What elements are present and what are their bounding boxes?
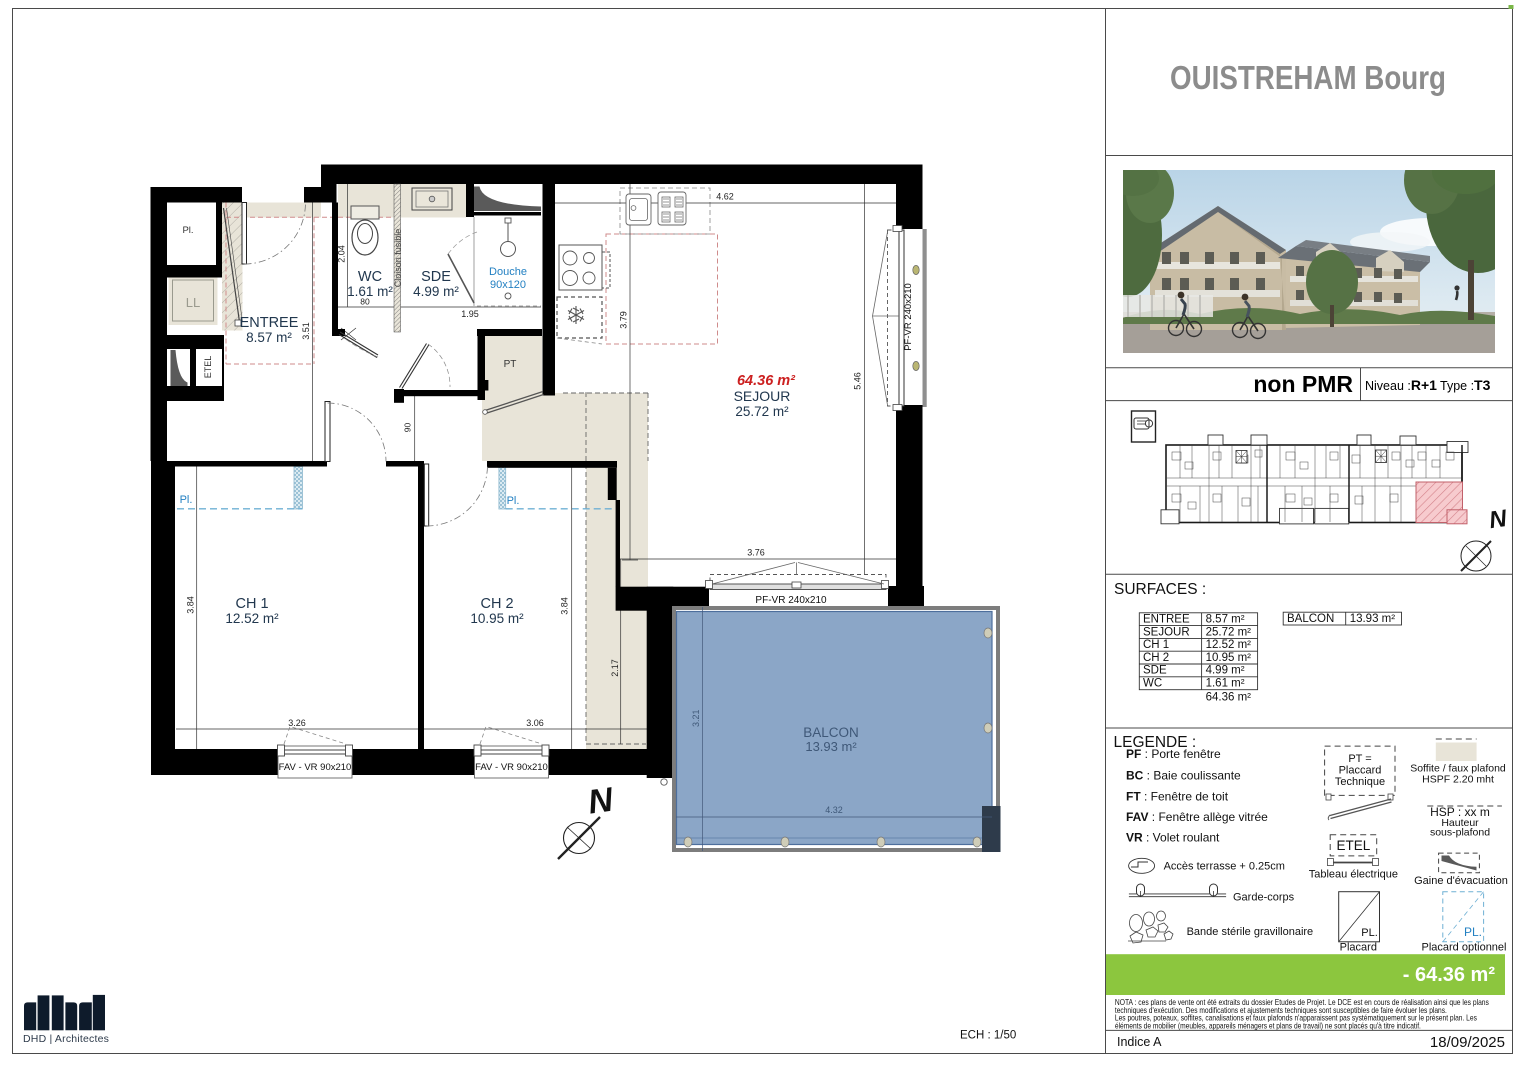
svg-text:CH 1: CH 1 [1143,639,1169,651]
svg-text:Type :T3: Type :T3 [1440,377,1491,393]
svg-text:éléments de mobilier (meubles,: éléments de mobilier (meubles, appareils… [1115,1020,1421,1030]
svg-text:SDE: SDE [1143,665,1167,677]
svg-text:8.57 m²: 8.57 m² [1206,614,1245,626]
svg-text:3.26: 3.26 [288,718,306,728]
svg-text:- 64.36 m²: - 64.36 m² [1403,964,1496,986]
svg-text:BALCON: BALCON [803,725,859,740]
svg-text:4.99 m²: 4.99 m² [413,284,459,299]
svg-text:90: 90 [403,423,413,433]
svg-text:Placard optionnel: Placard optionnel [1421,942,1506,954]
svg-text:Tableau électrique: Tableau électrique [1309,869,1398,881]
svg-text:FAV - VR 90x210: FAV - VR 90x210 [475,762,548,773]
svg-text:3.06: 3.06 [526,718,544,728]
svg-text:Placard: Placard [1340,942,1377,954]
svg-text:13.93 m²: 13.93 m² [1350,613,1396,625]
svg-text:PF-VR 240x210: PF-VR 240x210 [755,595,827,606]
svg-text:25.72 m²: 25.72 m² [735,404,789,419]
svg-text:PL.: PL. [1464,925,1482,939]
svg-text:LL: LL [186,295,200,310]
svg-text:Indice A: Indice A [1117,1035,1162,1049]
svg-text:4.99 m²: 4.99 m² [1206,665,1245,677]
svg-text:3.79: 3.79 [619,311,629,329]
svg-text:non PMR: non PMR [1253,371,1353,397]
svg-text:ENTREE: ENTREE [1143,614,1190,626]
svg-text:PF-VR 240x210: PF-VR 240x210 [903,283,914,351]
svg-text:Douche: Douche [489,266,527,278]
svg-text:5.46: 5.46 [853,372,863,390]
svg-text:FAV - VR 90x210: FAV - VR 90x210 [279,762,352,773]
svg-text:Pl.: Pl. [182,225,193,236]
svg-text:Garde-corps: Garde-corps [1233,892,1295,904]
svg-text:3.51: 3.51 [301,322,311,340]
svg-text:Accès terrasse + 0.25cm: Accès terrasse + 0.25cm [1164,861,1285,873]
svg-text:3.76: 3.76 [747,548,765,558]
svg-text:FAV : Fenêtre allège vitrée: FAV : Fenêtre allège vitrée [1126,810,1268,824]
svg-text:SURFACES :: SURFACES : [1114,581,1206,598]
svg-text:sous-plafond: sous-plafond [1430,827,1490,839]
svg-text:VR : Volet roulant: VR : Volet roulant [1126,831,1220,845]
svg-text:10.95 m²: 10.95 m² [1206,652,1252,664]
svg-text:OUISTREHAM Bourg: OUISTREHAM Bourg [1170,59,1446,96]
svg-text:64.36 m²: 64.36 m² [737,373,796,389]
svg-text:CH 1: CH 1 [235,596,268,612]
svg-text:WC: WC [1143,678,1162,690]
svg-text:4.32: 4.32 [825,805,843,815]
svg-text:BALCON: BALCON [1287,613,1334,625]
svg-text:CH 2: CH 2 [480,596,513,612]
svg-text:1.95: 1.95 [461,309,479,319]
svg-text:Cloison fusible: Cloison fusible [393,229,403,288]
svg-text:8.57 m²: 8.57 m² [246,330,292,345]
svg-text:Gaine d'évacuation: Gaine d'évacuation [1414,875,1508,887]
svg-text:25.72 m²: 25.72 m² [1206,626,1252,638]
svg-text:64.36 m²: 64.36 m² [1206,692,1252,704]
svg-text:Niveau :R+1: Niveau :R+1 [1365,377,1437,393]
svg-text:PF : Porte fenêtre: PF : Porte fenêtre [1126,747,1221,761]
svg-text:3.84: 3.84 [186,596,196,614]
svg-text:12.52 m²: 12.52 m² [1206,639,1252,651]
svg-text:BC : Baie coulissante: BC : Baie coulissante [1126,769,1241,783]
svg-text:ECH : 1/50: ECH : 1/50 [960,1030,1016,1042]
svg-text:3.21: 3.21 [691,709,701,727]
svg-text:FT : Fenêtre de toit: FT : Fenêtre de toit [1126,790,1229,804]
svg-text:HSPF 2.20 mht: HSPF 2.20 mht [1422,774,1494,786]
svg-text:18/09/2025: 18/09/2025 [1430,1034,1505,1051]
svg-text:80: 80 [360,297,370,307]
svg-text:Technique: Technique [1335,776,1385,788]
svg-text:DHD | Architectes: DHD | Architectes [23,1033,109,1045]
svg-text:2.17: 2.17 [610,659,620,677]
svg-text:1.61 m²: 1.61 m² [347,284,393,299]
svg-text:Bande stérile gravillonaire: Bande stérile gravillonaire [1187,926,1314,938]
svg-text:10.95 m²: 10.95 m² [470,611,524,626]
svg-text:PT: PT [504,359,517,370]
svg-text:ETEL: ETEL [203,356,213,379]
svg-text:CH 2: CH 2 [1143,652,1169,664]
svg-text:Pl.: Pl. [507,495,520,507]
svg-text:SEJOUR: SEJOUR [1143,626,1190,638]
svg-text:Placcard: Placcard [1339,765,1382,777]
svg-text:3.84: 3.84 [560,597,570,615]
svg-text:ENTREE: ENTREE [240,315,299,331]
svg-text:4.62: 4.62 [716,192,734,202]
svg-text:12.52 m²: 12.52 m² [225,611,279,626]
svg-text:PT =: PT = [1348,753,1371,765]
svg-text:90x120: 90x120 [490,279,526,291]
svg-text:WC: WC [358,269,382,285]
svg-text:ETEL: ETEL [1337,838,1371,853]
svg-text:Pl.: Pl. [180,494,193,506]
svg-text:13.93 m²: 13.93 m² [805,739,857,754]
svg-text:PL.: PL. [1361,927,1378,939]
svg-text:SEJOUR: SEJOUR [734,388,791,404]
svg-text:2.04: 2.04 [337,245,347,263]
svg-text:1.61 m²: 1.61 m² [1206,678,1245,690]
svg-text:SDE: SDE [421,269,451,285]
